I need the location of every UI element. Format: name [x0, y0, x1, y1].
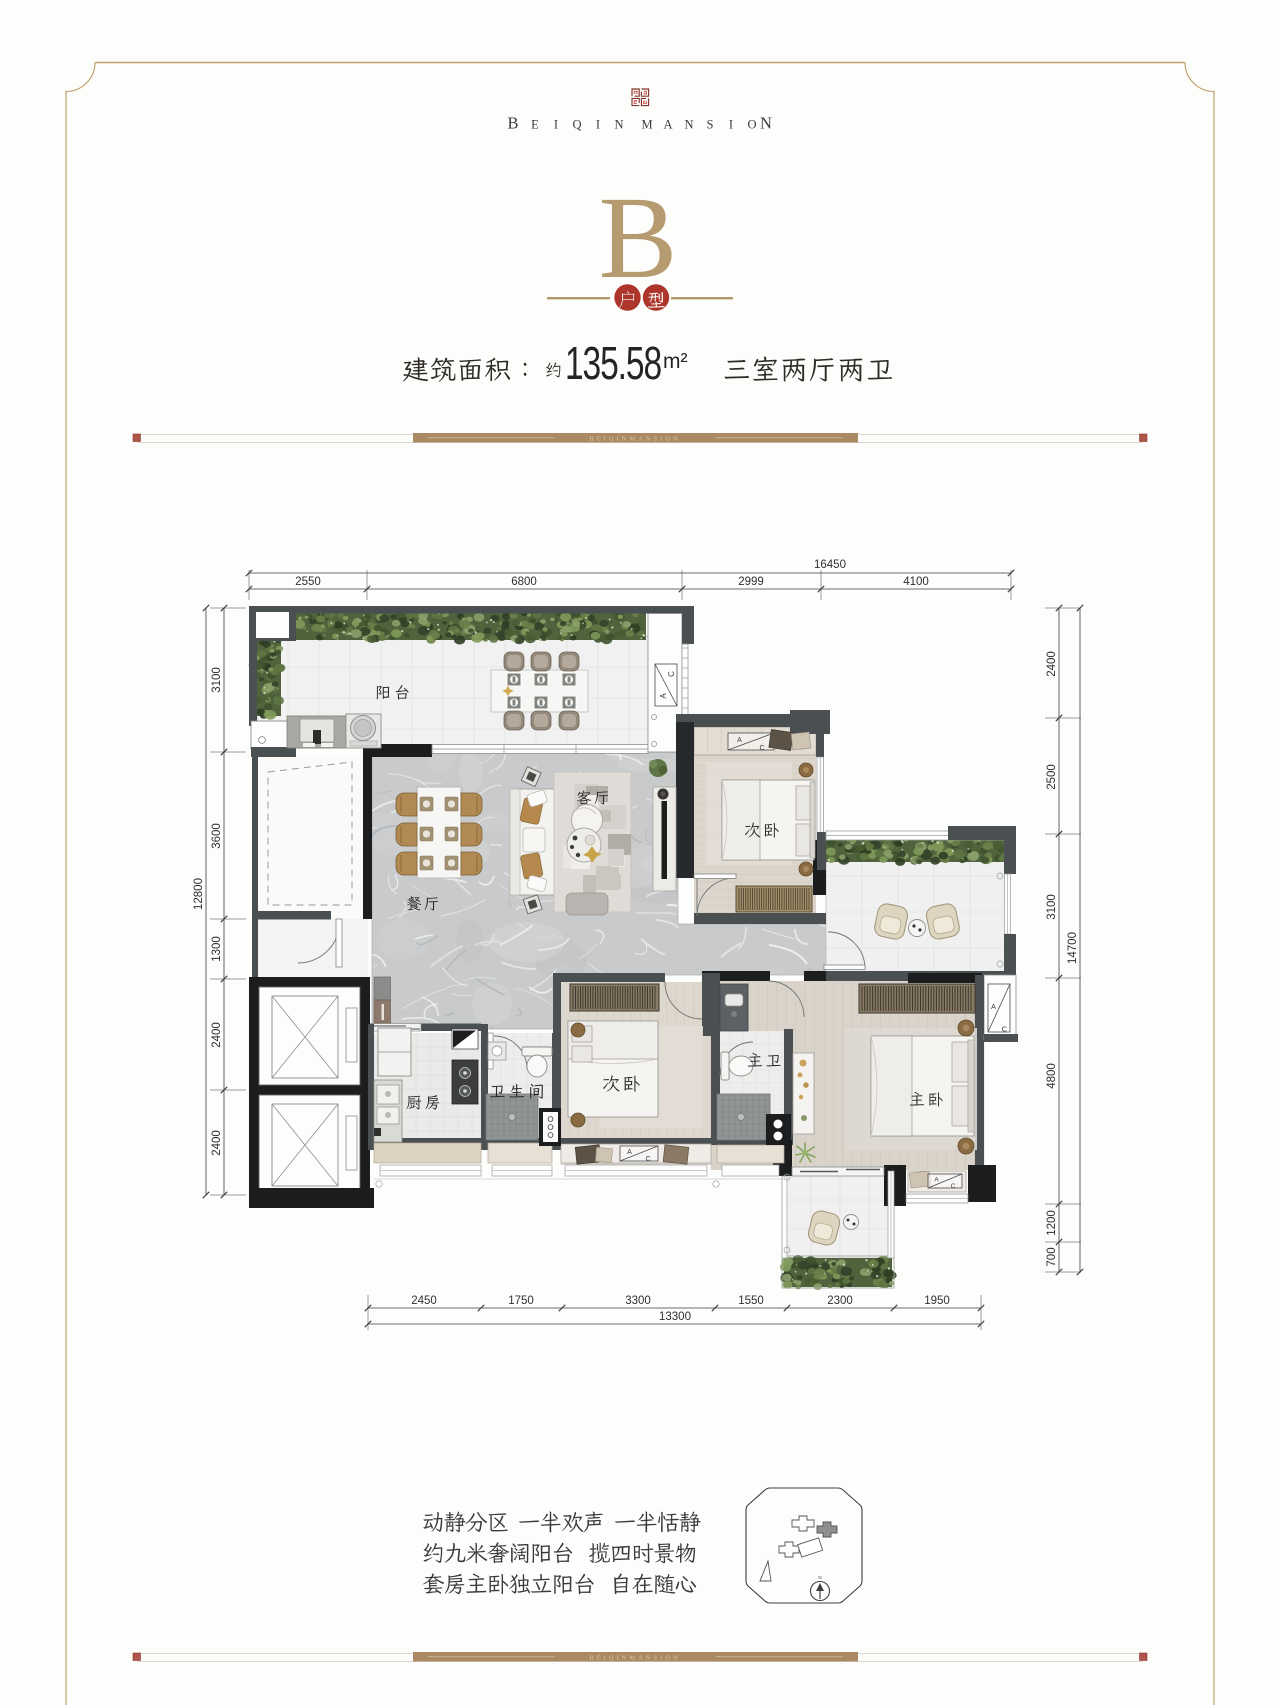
svg-text:A: A: [934, 1176, 939, 1183]
svg-text:16450: 16450: [814, 559, 846, 571]
svg-text:A: A: [627, 1149, 632, 1156]
svg-text:2550: 2550: [295, 576, 321, 588]
svg-text:3100: 3100: [211, 667, 223, 693]
svg-text:BEIQINMANSION: BEIQINMANSION: [589, 1655, 680, 1662]
svg-text:1550: 1550: [738, 1295, 764, 1307]
svg-text:1750: 1750: [508, 1295, 534, 1307]
svg-text:2400: 2400: [211, 1022, 223, 1048]
svg-text:I: I: [554, 118, 558, 132]
svg-text:700: 700: [1046, 1247, 1058, 1266]
svg-text:1300: 1300: [211, 936, 223, 962]
svg-text:m²: m²: [663, 350, 688, 373]
svg-text:2450: 2450: [411, 1295, 437, 1307]
svg-text:1950: 1950: [924, 1295, 950, 1307]
svg-text:3300: 3300: [625, 1295, 651, 1307]
svg-text:N: N: [760, 114, 772, 133]
svg-text:C: C: [667, 671, 676, 677]
svg-text:I: I: [596, 118, 600, 132]
svg-text:2500: 2500: [1046, 764, 1058, 790]
svg-text:C: C: [760, 745, 765, 752]
svg-text:N: N: [818, 1575, 821, 1580]
svg-text:M: M: [641, 118, 652, 132]
svg-text:Q: Q: [572, 118, 581, 132]
svg-text:A: A: [737, 737, 742, 744]
svg-text:B: B: [507, 114, 518, 133]
svg-text:1200: 1200: [1046, 1210, 1058, 1236]
svg-text:A: A: [991, 1002, 996, 1011]
svg-text:2300: 2300: [827, 1295, 853, 1307]
svg-text:S: S: [707, 118, 714, 132]
svg-text:13300: 13300: [659, 1311, 691, 1323]
svg-text:A: A: [659, 693, 668, 699]
svg-text:N: N: [614, 118, 623, 132]
svg-text:BEIQINMANSION: BEIQINMANSION: [589, 436, 680, 443]
svg-text:C: C: [951, 1183, 956, 1190]
svg-text:I: I: [729, 118, 733, 132]
svg-text:B: B: [599, 172, 678, 303]
svg-text:E: E: [531, 118, 539, 132]
svg-text:C: C: [646, 1156, 651, 1163]
svg-text:2999: 2999: [738, 576, 764, 588]
svg-text:2400: 2400: [1046, 651, 1058, 677]
svg-text:12800: 12800: [193, 878, 205, 910]
svg-text:2400: 2400: [211, 1130, 223, 1156]
svg-text:A: A: [663, 118, 672, 132]
svg-text:4100: 4100: [903, 576, 929, 588]
svg-text:C: C: [1002, 1025, 1008, 1034]
svg-text:135.58: 135.58: [565, 337, 661, 389]
svg-text:14700: 14700: [1067, 932, 1079, 964]
svg-text:O: O: [747, 118, 756, 132]
svg-text:6800: 6800: [511, 576, 537, 588]
svg-text:4800: 4800: [1046, 1063, 1058, 1089]
svg-text:N: N: [684, 118, 693, 132]
svg-text:3100: 3100: [1046, 894, 1058, 920]
svg-text:3600: 3600: [211, 823, 223, 849]
